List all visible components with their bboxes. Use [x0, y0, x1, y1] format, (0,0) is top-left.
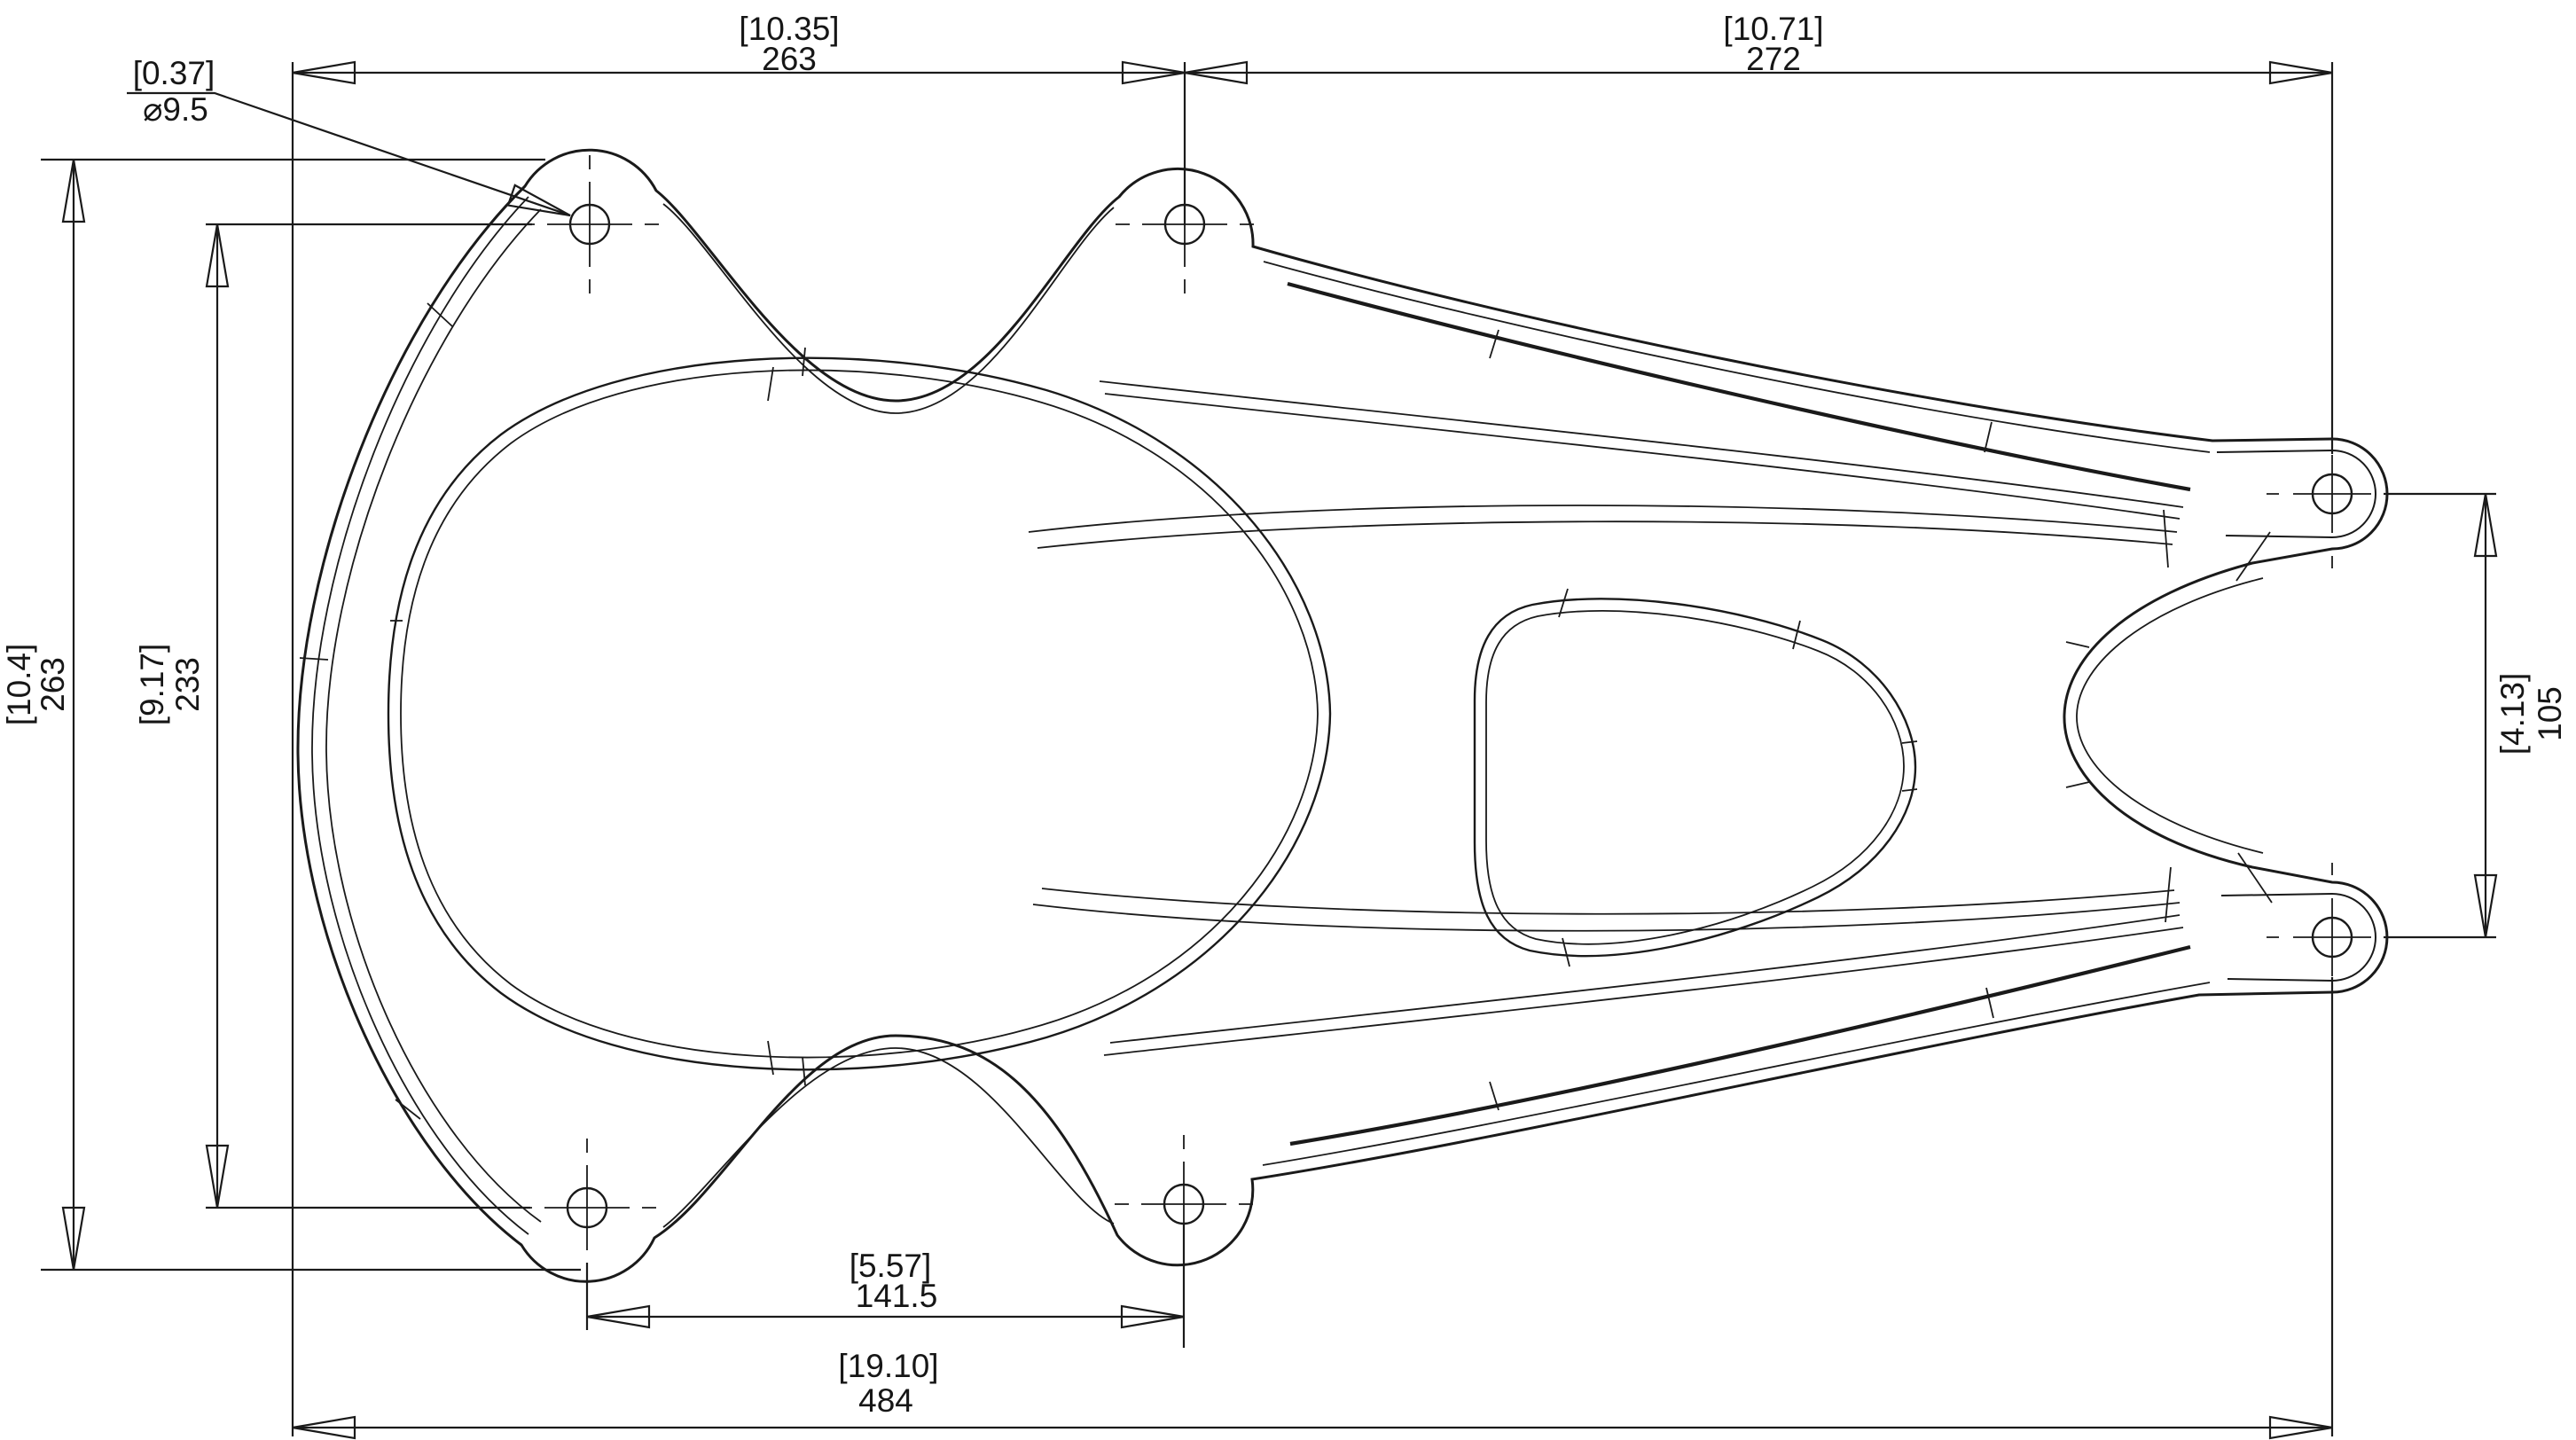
hole-callout-ref: [0.37]	[133, 55, 215, 91]
technical-drawing: [10.35] 263 [10.71] 272 [0.37] ⌀9.5 [10.…	[0, 0, 2576, 1440]
hole-callout-val: ⌀9.5	[143, 91, 208, 128]
dim-bottom-holes-val: 141.5	[856, 1278, 938, 1314]
drawing-canvas: [10.35] 263 [10.71] 272 [0.37] ⌀9.5 [10.…	[0, 0, 2576, 1440]
dim-top-left-val: 263	[762, 41, 817, 77]
dim-bottom-overall-ref: [19.10]	[838, 1348, 938, 1384]
dim-top-right-val: 272	[1746, 41, 1801, 77]
dim-right-pivots-ref: [4.13]	[2494, 673, 2531, 755]
dim-left-holes-val: 233	[169, 657, 206, 712]
sheet-background	[0, 0, 2576, 1440]
dim-left-overall-ref: [10.4]	[1, 644, 37, 726]
dim-left-overall-val: 263	[35, 657, 71, 712]
dim-left-holes-ref: [9.17]	[134, 644, 170, 726]
dim-right-pivots-val: 105	[2532, 686, 2568, 741]
dim-bottom-overall-val: 484	[858, 1382, 913, 1419]
